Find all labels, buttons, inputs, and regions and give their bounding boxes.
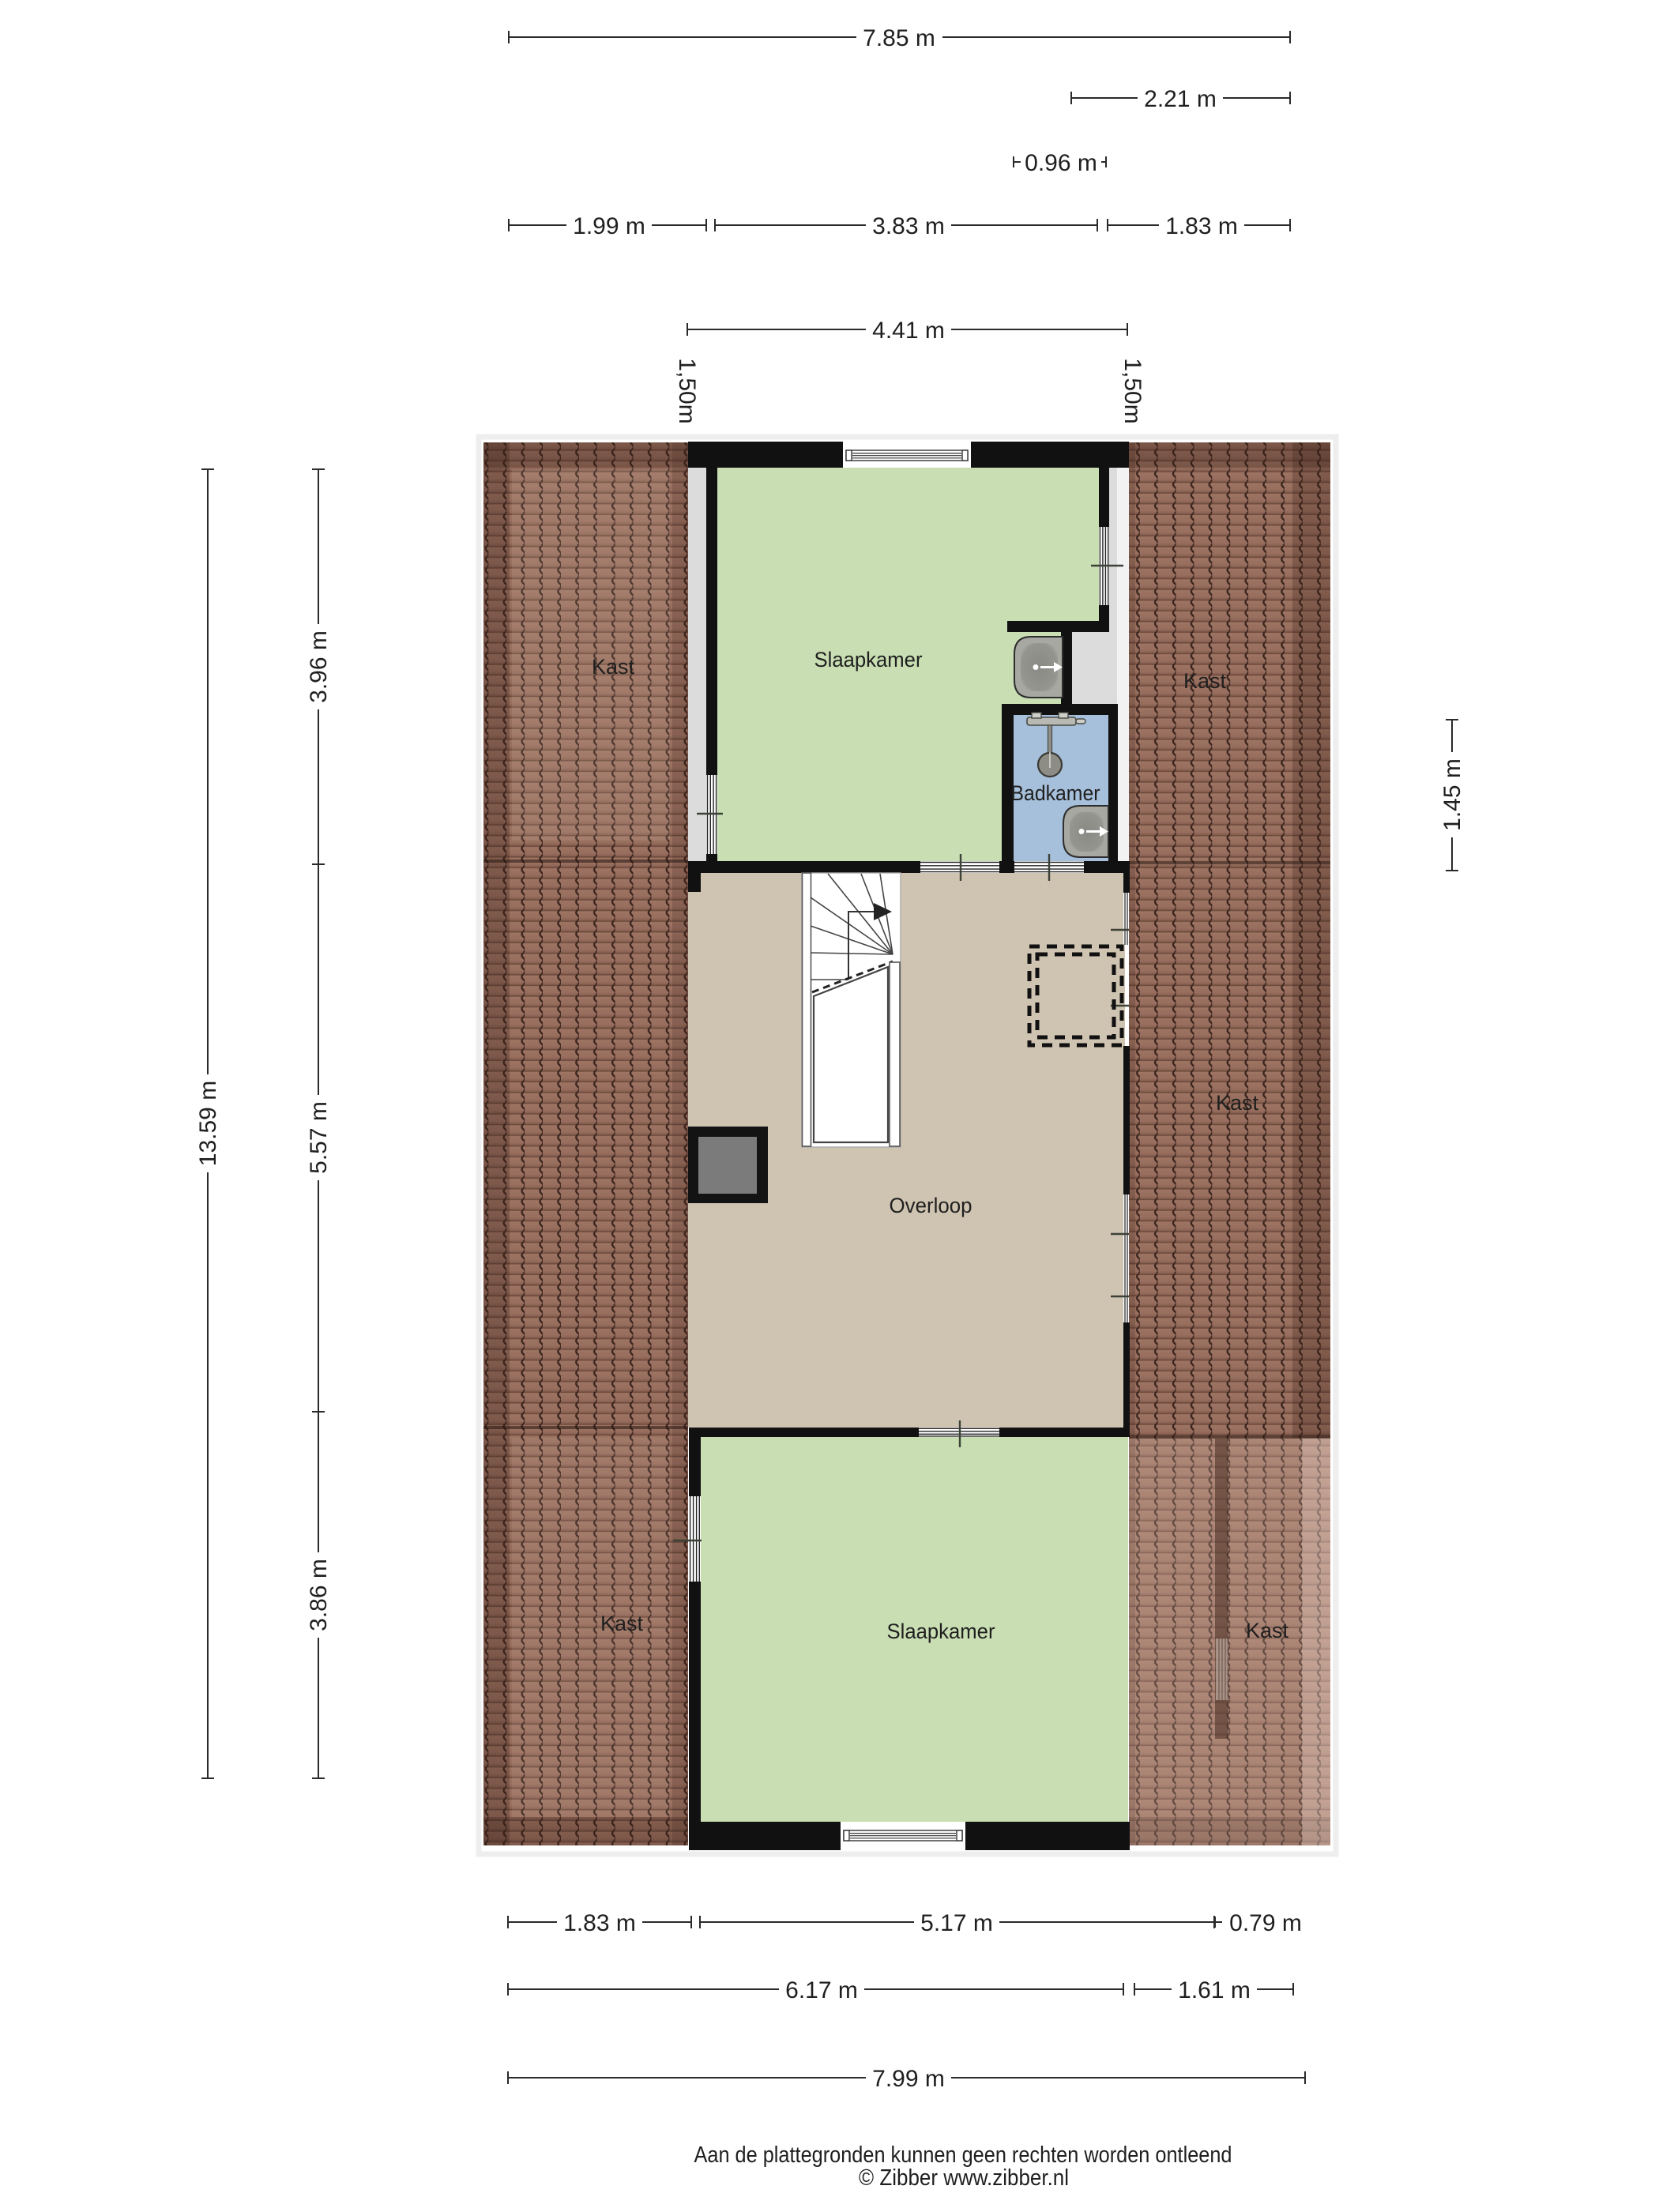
svg-text:3.96 m: 3.96 m — [306, 630, 332, 703]
svg-text:Slaapkamer: Slaapkamer — [814, 648, 923, 671]
svg-text:1.45 m: 1.45 m — [1439, 758, 1465, 831]
svg-text:Badkamer: Badkamer — [1011, 781, 1100, 805]
svg-text:1,50m: 1,50m — [674, 358, 700, 423]
svg-text:6.17 m: 6.17 m — [785, 1977, 858, 2003]
svg-text:1.83 m: 1.83 m — [1165, 213, 1238, 239]
svg-text:2.21 m: 2.21 m — [1144, 86, 1217, 112]
svg-text:Aan de plattegronden kunnen ge: Aan de plattegronden kunnen geen rechten… — [694, 2142, 1232, 2168]
svg-text:7.99 m: 7.99 m — [872, 2066, 945, 2092]
svg-text:© Zibber www.zibber.nl: © Zibber www.zibber.nl — [859, 2165, 1069, 2191]
svg-text:Kast: Kast — [1246, 1619, 1289, 1642]
svg-text:4.41 m: 4.41 m — [872, 318, 945, 344]
svg-text:3.83 m: 3.83 m — [872, 213, 945, 239]
svg-text:13.59 m: 13.59 m — [195, 1081, 221, 1166]
svg-text:Kast: Kast — [1183, 669, 1227, 693]
svg-text:1.61 m: 1.61 m — [1178, 1977, 1251, 2003]
svg-text:0.79 m: 0.79 m — [1229, 1910, 1302, 1936]
svg-text:0.96 m: 0.96 m — [1025, 150, 1097, 176]
svg-text:3.86 m: 3.86 m — [306, 1559, 332, 1631]
svg-text:Kast: Kast — [1216, 1091, 1259, 1115]
svg-text:7.85 m: 7.85 m — [863, 25, 935, 51]
svg-text:5.57 m: 5.57 m — [306, 1101, 332, 1174]
svg-text:1,50m: 1,50m — [1119, 358, 1145, 423]
svg-text:Kast: Kast — [600, 1612, 644, 1635]
svg-text:5.17 m: 5.17 m — [920, 1910, 993, 1936]
svg-text:Overloop: Overloop — [890, 1194, 972, 1217]
svg-text:Slaapkamer: Slaapkamer — [887, 1619, 995, 1643]
svg-text:Kast: Kast — [592, 655, 635, 679]
svg-text:1.83 m: 1.83 m — [563, 1910, 636, 1936]
svg-text:1.99 m: 1.99 m — [573, 213, 645, 239]
